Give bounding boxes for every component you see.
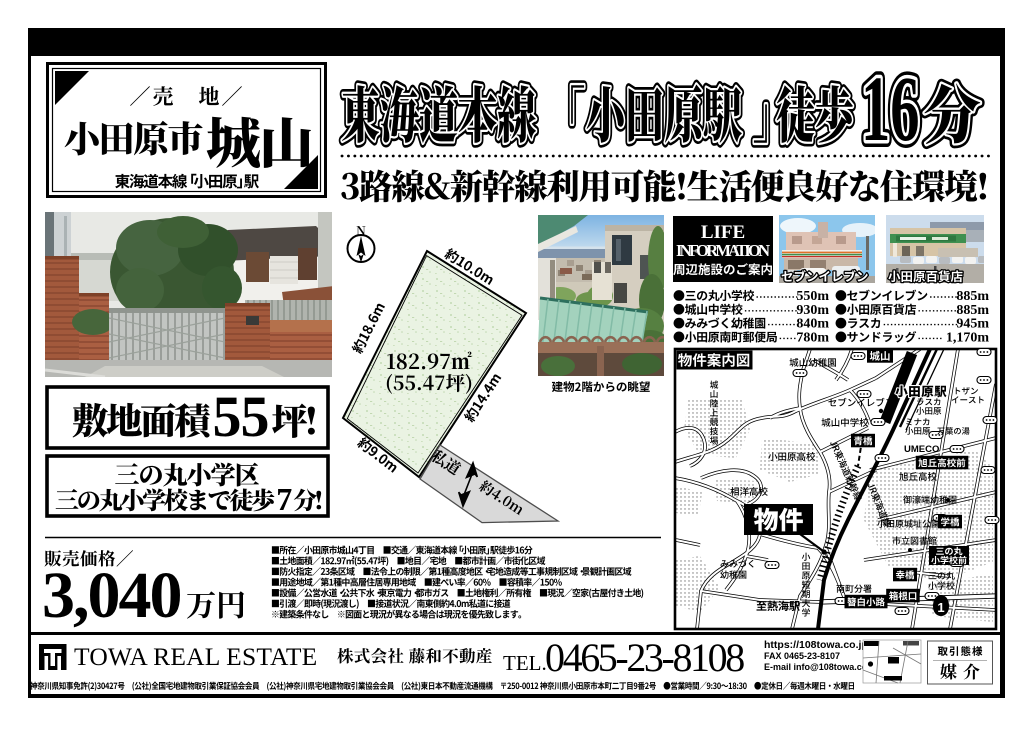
svg-text:780m: 780m <box>796 330 829 345</box>
svg-text:885m: 885m <box>956 303 989 318</box>
svg-text:1: 1 <box>937 600 944 615</box>
svg-text:E-mail info@108towa.co.jp: E-mail info@108towa.co.jp <box>764 662 878 672</box>
svg-text:840m: 840m <box>796 317 829 332</box>
svg-text:INFORMATION: INFORMATION <box>676 241 770 260</box>
svg-text:0465-23-8108: 0465-23-8108 <box>545 635 744 680</box>
svg-text:55: 55 <box>213 384 269 449</box>
svg-text:3,040: 3,040 <box>42 559 181 632</box>
svg-text:550m: 550m <box>796 289 829 304</box>
svg-text:FAX 0465-23-8107: FAX 0465-23-8107 <box>764 651 840 661</box>
svg-text:https://108towa.co.jp: https://108towa.co.jp <box>764 639 868 651</box>
svg-text:1,170m: 1,170m <box>946 330 990 345</box>
svg-text:930m: 930m <box>796 303 829 318</box>
svg-text:16: 16 <box>861 57 920 160</box>
svg-text:TEL.: TEL. <box>503 651 547 675</box>
svg-text:TOWA REAL ESTATE: TOWA REAL ESTATE <box>74 642 317 671</box>
svg-text:UMECO: UMECO <box>904 444 939 455</box>
svg-text:885m: 885m <box>956 289 989 304</box>
svg-text:7: 7 <box>276 481 292 517</box>
svg-text:945m: 945m <box>956 317 989 332</box>
svg-text:LIFE: LIFE <box>701 222 745 243</box>
